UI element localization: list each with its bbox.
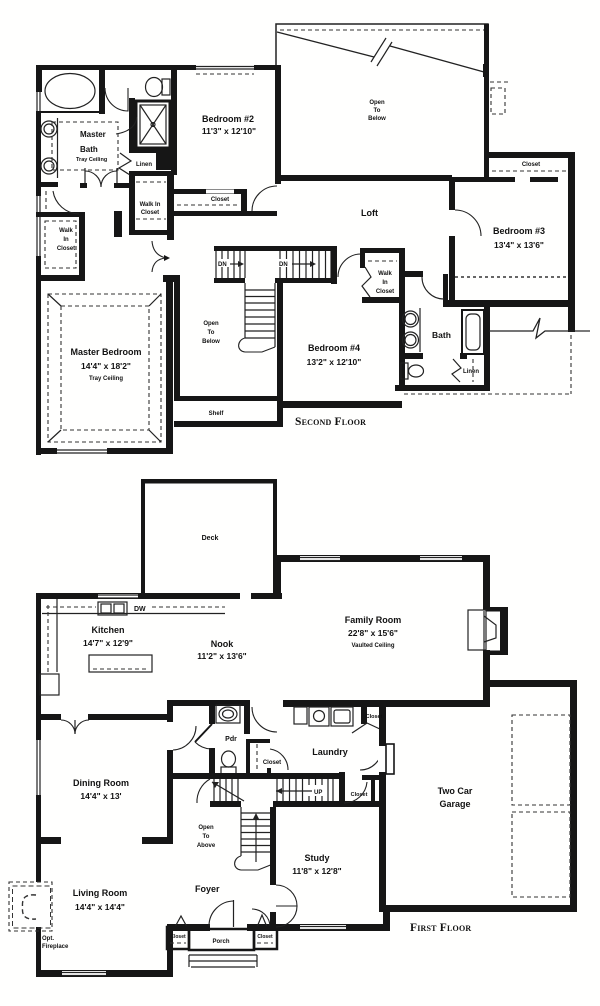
svg-text:14'4" x 13': 14'4" x 13' <box>80 791 121 801</box>
svg-text:11'8" x 12'8": 11'8" x 12'8" <box>292 866 341 876</box>
svg-text:Bedroom #3: Bedroom #3 <box>493 226 545 236</box>
svg-text:Deck: Deck <box>202 535 219 542</box>
svg-text:Closet: Closet <box>170 934 186 940</box>
svg-text:Garage: Garage <box>439 799 470 809</box>
svg-text:Master Bedroom: Master Bedroom <box>70 347 141 357</box>
svg-text:Closet: Closet <box>366 714 383 720</box>
svg-text:Dining Room: Dining Room <box>73 778 129 788</box>
svg-text:Study: Study <box>304 853 329 863</box>
svg-text:DN: DN <box>279 262 288 268</box>
svg-text:Nook: Nook <box>211 639 234 649</box>
svg-text:DN: DN <box>218 262 227 268</box>
svg-text:Closet: Closet <box>141 210 159 216</box>
svg-text:Open: Open <box>203 321 219 327</box>
svg-text:Closet: Closet <box>522 162 540 168</box>
svg-text:Bath: Bath <box>432 330 451 340</box>
svg-text:Open: Open <box>198 825 214 831</box>
svg-text:Living Room: Living Room <box>73 888 128 898</box>
svg-text:14'7" x 12'9": 14'7" x 12'9" <box>83 638 133 648</box>
svg-text:14'4" x 18'2": 14'4" x 18'2" <box>81 361 131 371</box>
svg-text:Foyer: Foyer <box>195 884 220 894</box>
svg-text:Opt.: Opt. <box>42 936 54 942</box>
svg-text:Second Floor: Second Floor <box>295 416 366 428</box>
svg-text:In: In <box>382 280 388 286</box>
svg-text:Below: Below <box>368 116 386 122</box>
svg-text:Closet: Closet <box>263 760 281 766</box>
svg-text:Loft: Loft <box>361 208 378 218</box>
svg-text:22'8" x 15'6": 22'8" x 15'6" <box>348 628 398 638</box>
svg-text:Family Room: Family Room <box>345 615 402 625</box>
svg-text:First Floor: First Floor <box>410 922 471 934</box>
svg-text:Above: Above <box>197 843 216 849</box>
svg-text:Walk In: Walk In <box>140 202 161 208</box>
svg-text:To: To <box>208 330 215 336</box>
svg-text:Walk: Walk <box>59 228 73 234</box>
svg-text:Closet: Closet <box>211 197 229 203</box>
svg-text:Bedroom #4: Bedroom #4 <box>308 343 360 353</box>
svg-text:11'2" x 13'6": 11'2" x 13'6" <box>197 651 246 661</box>
svg-text:Kitchen: Kitchen <box>91 625 124 635</box>
svg-text:14'4" x 14'4": 14'4" x 14'4" <box>75 902 125 912</box>
svg-text:Closet: Closet <box>376 289 394 295</box>
svg-text:Open: Open <box>369 100 385 106</box>
svg-text:Two Car: Two Car <box>438 786 473 796</box>
svg-text:Laundry: Laundry <box>312 747 348 757</box>
svg-text:UP: UP <box>314 790 322 796</box>
svg-text:Fireplace: Fireplace <box>42 944 69 950</box>
svg-text:DW: DW <box>134 606 146 613</box>
svg-text:11'3" x 12'10": 11'3" x 12'10" <box>202 126 256 136</box>
svg-text:Porch: Porch <box>212 939 229 945</box>
svg-text:Master: Master <box>80 130 106 139</box>
svg-text:Closet: Closet <box>257 934 273 940</box>
svg-text:In: In <box>63 237 69 243</box>
svg-text:Bath: Bath <box>80 145 98 154</box>
svg-text:Tray Ceiling: Tray Ceiling <box>76 157 107 163</box>
svg-text:Tray Ceiling: Tray Ceiling <box>89 376 123 382</box>
svg-text:Closet: Closet <box>57 246 75 252</box>
svg-text:Bedroom #2: Bedroom #2 <box>202 114 254 124</box>
svg-text:To: To <box>374 108 381 114</box>
svg-text:To: To <box>203 834 210 840</box>
svg-text:Vaulted Ceiling: Vaulted Ceiling <box>351 643 394 649</box>
svg-text:Linen: Linen <box>136 162 152 168</box>
svg-text:Linen: Linen <box>463 369 479 375</box>
svg-text:Pdr: Pdr <box>225 736 237 743</box>
svg-text:13'2" x 12'10": 13'2" x 12'10" <box>307 357 362 367</box>
svg-text:Below: Below <box>202 339 220 345</box>
svg-text:Walk: Walk <box>378 271 392 277</box>
svg-text:Shelf: Shelf <box>209 411 225 417</box>
svg-text:13'4" x 13'6": 13'4" x 13'6" <box>494 240 544 250</box>
